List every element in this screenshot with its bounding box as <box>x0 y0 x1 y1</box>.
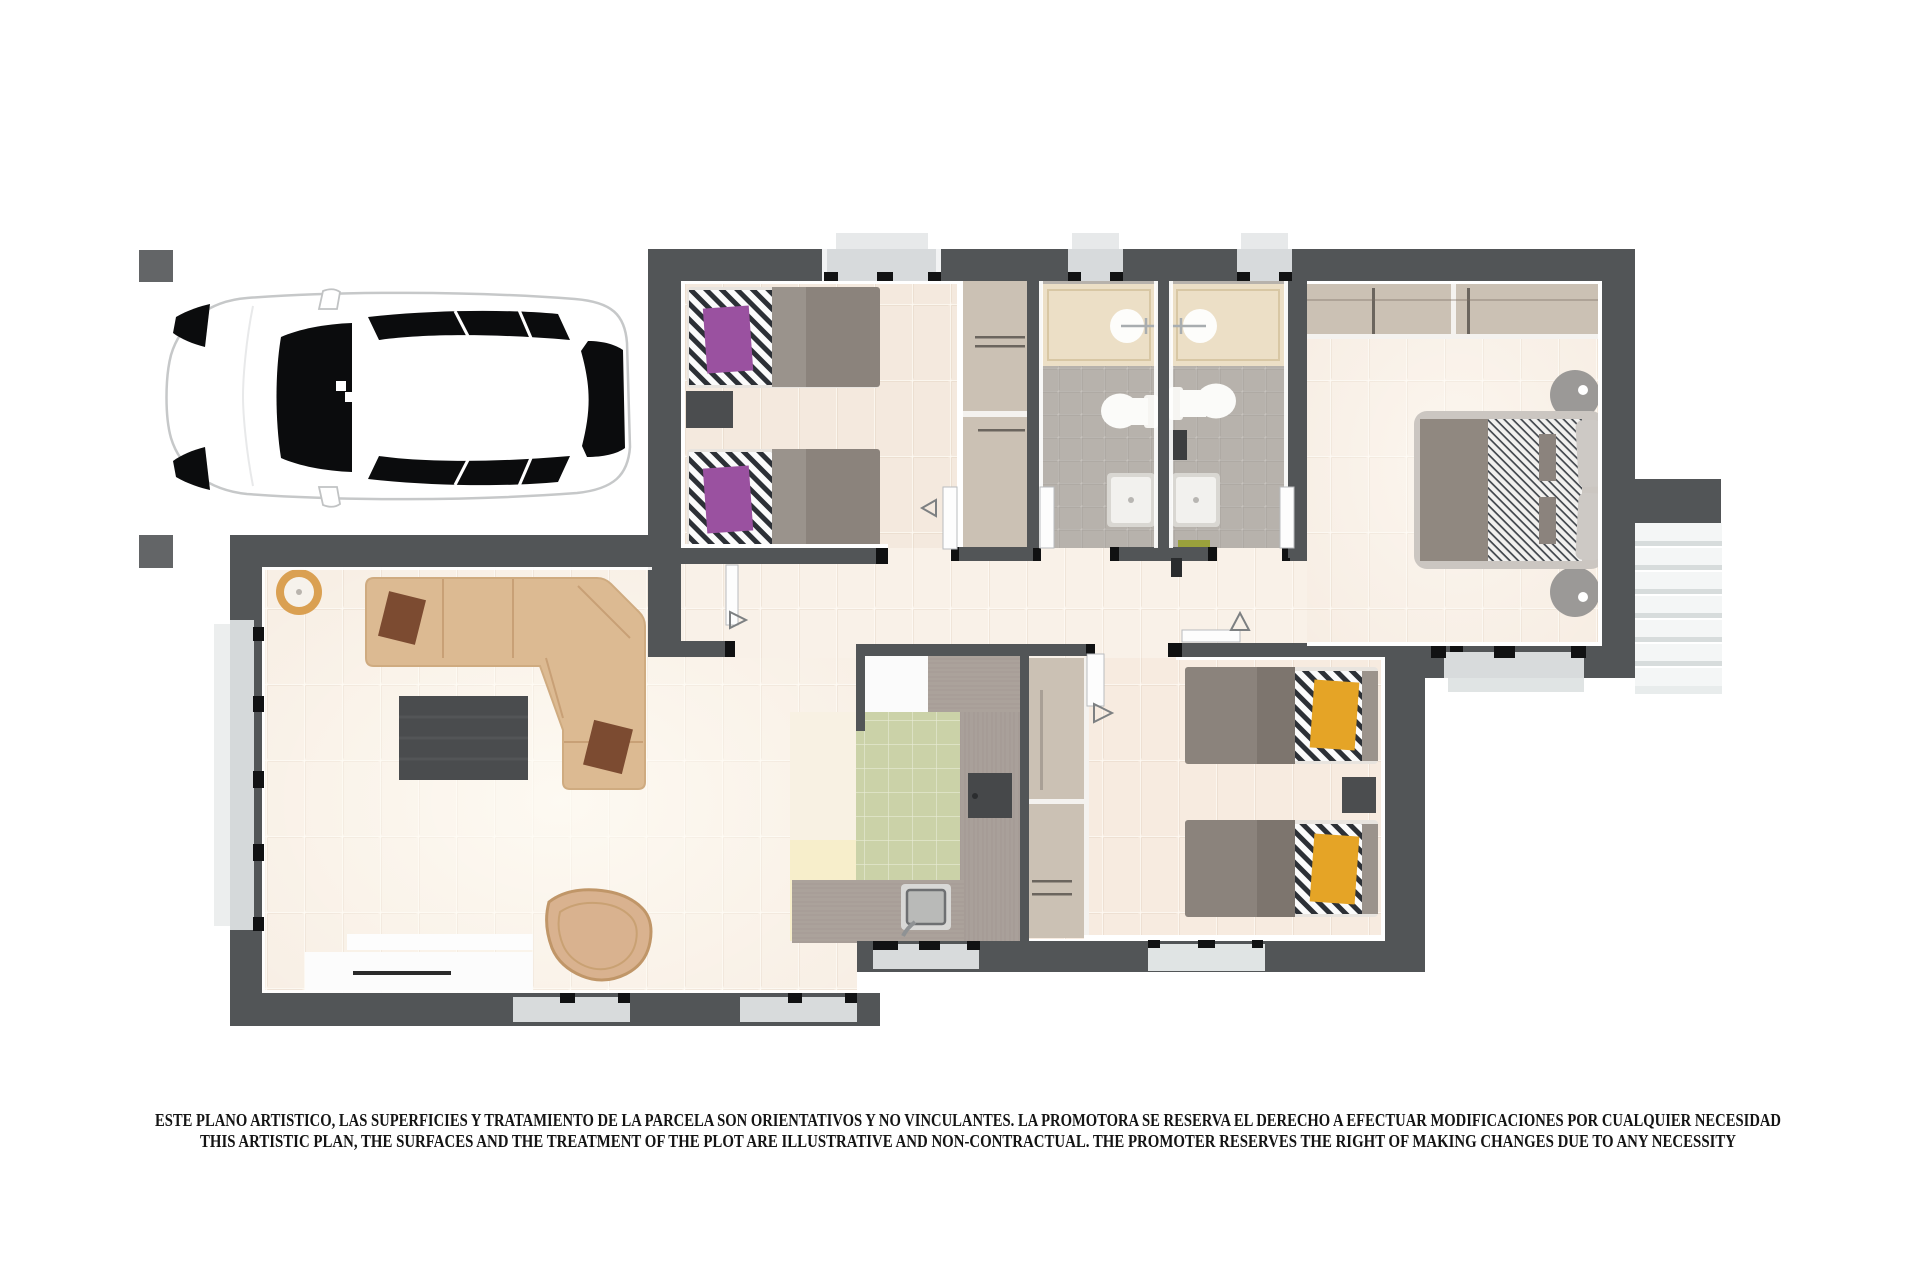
svg-text:ESTE PLANO ARTISTICO, LAS SUPE: ESTE PLANO ARTISTICO, LAS SUPERFICIES Y … <box>155 1110 1781 1130</box>
svg-text:THIS ARTISTIC PLAN, THE SURFAC: THIS ARTISTIC PLAN, THE SURFACES AND THE… <box>200 1131 1736 1151</box>
